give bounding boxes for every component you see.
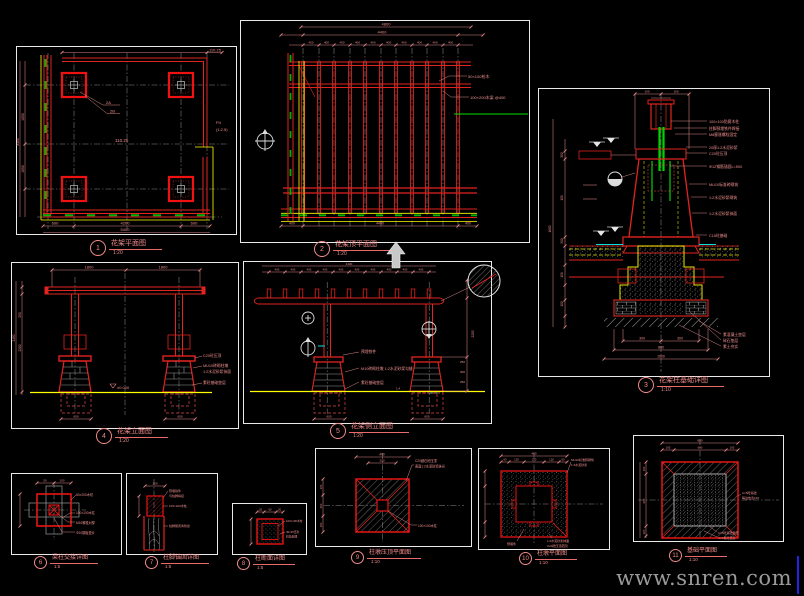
dc-dim-0: 20 xyxy=(259,508,263,512)
roof-dim-top1: 4800 xyxy=(382,22,392,27)
svg-text:100×100木柱: 100×100木柱 xyxy=(418,523,438,528)
section-dim-l3: 150 xyxy=(560,272,564,278)
svg-text:表面1:2水泥砂浆抹光: 表面1:2水泥砂浆抹光 xyxy=(415,464,446,469)
section-dim-b0: 300 xyxy=(639,337,645,341)
plan-dim-btotal: 5400 xyxy=(121,227,131,232)
section-dim-b3: 1000 xyxy=(657,355,665,359)
dd-labels: C20细石砼压顶 表面1:2水泥砂浆抹光 100×100木柱 xyxy=(415,458,446,528)
title-detail-foundation-plan: 11 基础平面图 1:10 xyxy=(669,548,727,563)
detail-circle-icon xyxy=(608,172,635,186)
roof-beams xyxy=(283,62,477,193)
plan-dim-center: 110.25 xyxy=(115,138,129,143)
section-dim-b1: 300 xyxy=(677,337,683,341)
svg-text:400: 400 xyxy=(291,268,296,272)
svg-text:400: 400 xyxy=(339,41,344,45)
section-dim-l4: 100 xyxy=(560,301,564,307)
side-dim-r1: 300 xyxy=(460,370,465,374)
title-dd-bubble: 9 xyxy=(351,551,364,564)
title-dc-bubble: 8 xyxy=(237,557,250,570)
svg-text:预埋铁件: 预埋铁件 xyxy=(361,349,376,354)
de-dim-4: 60 xyxy=(561,458,565,462)
front-elevation-drawing: 1800 1800 xyxy=(12,263,238,428)
svg-text:MU10标准砖砌筑: MU10标准砖砌筑 xyxy=(571,457,594,462)
svg-text:400: 400 xyxy=(386,41,391,45)
plan-drawing: 2A 2B 110.25 110.25 P4 (1:2.5) 600 4200 … xyxy=(17,47,236,234)
title-dd-name: 柱墩压顶平面图 xyxy=(367,550,421,559)
panel-detail-column-section: 20 60 20 100×100木柱 45×45压条 斜角处理 xyxy=(232,503,307,555)
side-foundations xyxy=(314,393,443,413)
side-dim-total: 4400 xyxy=(346,262,353,266)
detail-foundation-plan-drawing: 800 100 600 100 100 600 100 C15砼基础 每边放宽1… xyxy=(634,436,783,541)
svg-text:M10螺栓对穿: M10螺栓对穿 xyxy=(76,520,95,525)
side-rafter-ends xyxy=(267,289,431,298)
title-da-name: 梁柱交接详图 xyxy=(50,555,98,564)
svg-text:1:2水泥砂浆: 1:2水泥砂浆 xyxy=(571,462,587,467)
front-labels: C20砼压顶 MU10砖砌柱墩 1:2水泥砂浆抹面 素砼基础垫层 xyxy=(203,353,231,385)
section-dim-l2: 900 xyxy=(560,238,564,244)
title-db-bubble: 7 xyxy=(145,556,158,569)
title-df-name: 基础平面图 xyxy=(685,548,727,557)
detail-beam-column-drawing: 50 100 50×200木枋 100×100木柱 M10螺栓对穿 Φ10钢板垫… xyxy=(12,474,121,554)
df-dim-t1: 600 xyxy=(698,446,703,450)
plan-leader-label-1: 2A xyxy=(106,100,111,105)
title-de-bubble: 10 xyxy=(519,552,532,565)
title-dc-name: 柱断面详图 xyxy=(253,556,295,565)
plan-note-r2: (1:2.5) xyxy=(216,127,228,132)
svg-text:素混凝土垫层: 素混凝土垫层 xyxy=(723,332,746,337)
svg-text:C15砼基础: C15砼基础 xyxy=(742,490,757,495)
level-mark-icons-top xyxy=(589,138,619,147)
svg-text:C10素砼垫层: C10素砼垫层 xyxy=(718,535,736,540)
title-side-name: 花架侧立面图 xyxy=(349,423,409,433)
panel-detail-pier-cap: 400 200 100 200 100 C20细石砼压顶 表面1:2水泥砂浆抹光… xyxy=(315,448,472,547)
da-dim-0: 50 xyxy=(43,479,47,483)
title-detail-column-section: 8 柱断面详图 1:5 xyxy=(237,556,295,571)
front-dim-l1: 2200 xyxy=(18,344,22,351)
title-front-scale: 1:20 xyxy=(115,438,168,444)
svg-text:400: 400 xyxy=(371,268,376,272)
side-top-dims xyxy=(262,266,436,274)
cad-sheet: 2A 2B 110.25 110.25 P4 (1:2.5) 600 4200 … xyxy=(0,0,804,596)
plan-dim-l0: 1650 xyxy=(21,113,25,121)
svg-text:400: 400 xyxy=(370,41,375,45)
svg-text:素砼基础垫层: 素砼基础垫层 xyxy=(361,380,384,385)
plan-beam-outline xyxy=(43,55,210,217)
svg-text:柱脚刷沥青防腐: 柱脚刷沥青防腐 xyxy=(169,523,190,528)
side-labels: 预埋铁件 M10砖砌柱墩 1:2水泥砂浆勾缝 素砼基础垫层 xyxy=(361,349,413,385)
svg-text:M8膨胀螺栓固定: M8膨胀螺栓固定 xyxy=(709,132,737,137)
title-section-bubble: 3 xyxy=(638,377,654,393)
svg-text:Φ10钢板垫片: Φ10钢板垫片 xyxy=(76,530,95,535)
svg-text:与柱脚焊接: 与柱脚焊接 xyxy=(169,493,184,498)
db-labels: 预埋铁件 与柱脚焊接 100×100木柱 柱脚刷沥青防腐 xyxy=(169,488,190,528)
svg-text:400: 400 xyxy=(323,268,328,272)
plan-columns xyxy=(62,73,193,201)
df-dim-t2: 100 xyxy=(730,446,735,450)
panel-roof-plan: 4800 4400 400 400 400 400 400 400 400 40… xyxy=(240,20,530,243)
dd-geometry xyxy=(356,479,409,532)
svg-text:100×100木柱: 100×100木柱 xyxy=(286,519,303,523)
side-dim-found1: 600 xyxy=(326,415,331,419)
svg-text:C20砼压顶: C20砼压顶 xyxy=(203,353,222,358)
section-left-dims xyxy=(553,119,597,329)
title-de-name: 柱墩平面图 xyxy=(535,551,577,560)
svg-text:碎石垫层: 碎石垫层 xyxy=(723,338,738,343)
panel-detail-foundation-plan: 800 100 600 100 100 600 100 C15砼基础 每边放宽1… xyxy=(633,435,784,542)
da-dims xyxy=(19,482,73,528)
svg-text:400: 400 xyxy=(308,41,313,45)
svg-text:100×100木柱: 100×100木柱 xyxy=(169,503,187,508)
title-base-section: 3 花架柱基础详图 1:10 xyxy=(638,377,724,393)
svg-text:素土夯实: 素土夯实 xyxy=(723,344,738,349)
dc-dim-1: 60 xyxy=(268,508,272,512)
svg-text:400: 400 xyxy=(307,268,312,272)
title-roof-plan: 2 花架顶平面图 1:20 xyxy=(314,241,393,257)
plan-dim-l1: 1650 xyxy=(21,165,25,173)
side-centerlines xyxy=(327,282,429,414)
side-right-dims xyxy=(441,279,469,393)
title-detail-pier-cap: 9 柱墩压顶平面图 1:10 xyxy=(351,550,421,565)
watermark: www.snren.com xyxy=(616,566,792,590)
svg-text:M10砖砌柱墩 1:2水泥砂浆勾缝: M10砖砌柱墩 1:2水泥砂浆勾缝 xyxy=(361,366,413,371)
svg-text:400: 400 xyxy=(355,41,360,45)
panel-base-section: 100 100 xyxy=(538,88,770,377)
df-dim-l1: 600 xyxy=(642,498,646,503)
plan-dim-b1: 4200 xyxy=(121,221,131,226)
panel-detail-beam-column: 50 100 50×200木枋 100×100木柱 M10螺栓对穿 Φ10钢板垫… xyxy=(11,473,122,555)
front-left-dims xyxy=(16,281,24,395)
roof-dim-b1: 4400 xyxy=(376,222,384,226)
dd-dim-l2: 100 xyxy=(319,522,323,527)
title-detail-column-foot: 7 柱脚锚固详图 1:5 xyxy=(145,555,209,570)
detail-pier-plan-drawing: 480 60 120 120 120 60 MU10标准砖砌筑 1:2水泥砂 xyxy=(479,449,609,549)
svg-text:MU10砖砌柱墩: MU10砖砌柱墩 xyxy=(203,363,229,368)
title-section-name: 花架柱基础详图 xyxy=(657,377,724,387)
roof-label-leaders xyxy=(439,76,469,97)
da-labels: 50×200木枋 100×100木柱 M10螺栓对穿 Φ10钢板垫片 xyxy=(76,492,96,535)
svg-text:C15砼基础: C15砼基础 xyxy=(709,233,728,238)
section-cap-slab xyxy=(579,149,686,159)
side-ground-note: 1:4 xyxy=(396,387,401,391)
roof-label-1: 50×100枋木 xyxy=(468,73,489,79)
level-mark-icons-ground xyxy=(593,227,623,236)
up-arrow-icon xyxy=(383,240,409,270)
svg-text:400: 400 xyxy=(432,41,437,45)
svg-text:1:2水泥砂浆砌筑: 1:2水泥砂浆砌筑 xyxy=(709,195,737,200)
front-dim-l0: 250 xyxy=(18,312,22,318)
title-plan: 1 花架平面图 1:20 xyxy=(90,240,162,256)
svg-text:400: 400 xyxy=(275,268,280,272)
df-geometry xyxy=(662,462,738,538)
panel-detail-column-foot: 100 预埋铁件 与柱脚焊接 100×100木柱 柱脚刷沥青防腐 xyxy=(126,473,218,555)
svg-text:20厚1:2水泥砂浆: 20厚1:2水泥砂浆 xyxy=(709,145,738,150)
front-dim-t1: 1800 xyxy=(159,265,169,270)
svg-text:斜角处理: 斜角处理 xyxy=(286,535,297,539)
title-da-bubble: 6 xyxy=(34,556,47,569)
svg-text:45×45压条: 45×45压条 xyxy=(286,530,300,534)
side-dim-r2: 250 xyxy=(460,380,465,384)
svg-text:400: 400 xyxy=(324,41,329,45)
svg-text:400: 400 xyxy=(355,268,360,272)
title-de-scale: 1:10 xyxy=(535,560,577,566)
side-columns xyxy=(324,304,433,357)
base-section-drawing: 100 100 xyxy=(539,89,769,376)
roof-plan-drawing: 4800 4400 400 400 400 400 400 400 400 40… xyxy=(241,21,529,242)
svg-text:素砼基础垫层: 素砼基础垫层 xyxy=(203,380,226,385)
svg-text:每边放宽100: 每边放宽100 xyxy=(742,495,759,500)
title-plan-bubble: 1 xyxy=(90,240,106,256)
front-dim-found2: 600 xyxy=(177,415,182,419)
df-dim-l2: 100 xyxy=(642,529,646,534)
title-plan-scale: 1:20 xyxy=(109,250,162,256)
front-dim-found1: 600 xyxy=(73,415,78,419)
title-db-name: 柱脚锚固详图 xyxy=(161,555,209,564)
section-labels: 100×100防腐木柱 柱脚预埋铁件焊接 M8膨胀螺栓固定 20厚1:2水泥砂浆… xyxy=(709,119,746,349)
de-dim-1: 120 xyxy=(514,458,519,462)
da-dim-1: 100 xyxy=(59,479,64,483)
title-section-scale: 1:10 xyxy=(657,387,724,393)
title-detail-pier-plan: 10 柱墩平面图 1:10 xyxy=(519,551,577,566)
side-elevation-drawing: 4400 400 400 400 400 400 400 400 400 400… xyxy=(244,262,491,423)
svg-text:400: 400 xyxy=(448,41,453,45)
title-detail-beam-column: 6 梁柱交接详图 1:5 xyxy=(34,555,98,570)
title-df-scale: 1:10 xyxy=(685,557,727,563)
svg-text:1:2水泥砂浆抹面: 1:2水泥砂浆抹面 xyxy=(203,369,231,374)
de-dim-3: 120 xyxy=(549,458,554,462)
de-dim-top: 480 xyxy=(531,452,536,456)
de-dim-0: 60 xyxy=(503,458,507,462)
svg-text:400: 400 xyxy=(401,41,406,45)
detail-bubble-icon xyxy=(441,265,500,301)
svg-text:预埋铁件: 预埋铁件 xyxy=(169,488,181,493)
title-front-bubble: 4 xyxy=(96,428,112,444)
dc-geometry xyxy=(257,519,283,544)
front-ground-label: ±0.000 xyxy=(117,385,130,390)
svg-text:C15砼基础垫层: C15砼基础垫层 xyxy=(718,530,739,535)
de-dim-2: 120 xyxy=(532,458,537,462)
front-bottom-dims xyxy=(60,418,197,421)
side-dim-r0: 250 xyxy=(460,360,465,364)
title-da-scale: 1:5 xyxy=(50,564,98,570)
plan-dim-overall: 110.25 xyxy=(209,48,222,53)
svg-text:100×100防腐木柱: 100×100防腐木柱 xyxy=(709,119,739,124)
svg-text:400: 400 xyxy=(417,41,422,45)
svg-text:400: 400 xyxy=(419,268,424,272)
plan-dim-b0: 600 xyxy=(52,221,59,226)
detail-pier-cap-drawing: 400 200 100 200 100 C20细石砼压顶 表面1:2水泥砂浆抹光… xyxy=(316,449,471,546)
section-dim-l0: 300 xyxy=(560,152,564,158)
title-df-bubble: 11 xyxy=(669,549,682,562)
df-dim-l0: 100 xyxy=(642,466,646,471)
roof-dim-b2: 400 xyxy=(465,222,471,226)
panel-plan: 2A 2B 110.25 110.25 P4 (1:2.5) 600 4200 … xyxy=(16,46,237,235)
side-beam xyxy=(254,298,444,304)
svg-text:柱脚预埋铁件焊接: 柱脚预埋铁件焊接 xyxy=(709,126,740,131)
svg-text:50×200木枋: 50×200木枋 xyxy=(76,492,94,497)
detail-column-foot-drawing: 100 预埋铁件 与柱脚焊接 100×100木柱 柱脚刷沥青防腐 xyxy=(127,474,217,554)
roof-label-2: 100×200木梁 @400 xyxy=(470,94,506,100)
side-label-leaders xyxy=(343,352,359,389)
detail-column-section-drawing: 20 60 20 100×100木柱 45×45压条 斜角处理 xyxy=(233,504,306,554)
plan-note-r1: P4 xyxy=(216,120,222,125)
svg-text:Φ12钢筋锚固L=500: Φ12钢筋锚固L=500 xyxy=(709,164,742,169)
front-dim-t0: 1800 xyxy=(85,265,95,270)
title-roof-bubble: 2 xyxy=(314,241,330,257)
db-dim: 100 xyxy=(152,482,157,486)
section-dim-l1: 150 xyxy=(560,195,564,201)
svg-text:100×100木柱: 100×100木柱 xyxy=(76,510,96,515)
title-plan-name: 花架平面图 xyxy=(109,240,162,250)
detail-marker-icon xyxy=(255,129,275,151)
roof-rafter-centerlines xyxy=(303,48,458,229)
panel-detail-pier-plan: 480 60 120 120 120 60 MU10标准砖砌筑 1:2水泥砂 xyxy=(478,448,610,550)
side-dim-rtotal: 2200 xyxy=(471,330,475,337)
svg-text:400: 400 xyxy=(339,268,344,272)
title-side-elevation: 5 花架侧立面图 1:20 xyxy=(330,423,409,439)
svg-text:预埋件: 预埋件 xyxy=(507,541,516,546)
side-dim-found2: 600 xyxy=(424,415,429,419)
svg-text:MU10标准砖砌筑: MU10标准砖砌筑 xyxy=(709,182,738,187)
title-side-scale: 1:20 xyxy=(349,433,409,439)
roof-rafter-dims: 400 400 400 400 400 400 400 400 400 400 xyxy=(308,41,453,45)
roof-dimensions xyxy=(280,26,485,228)
df-dim-t0: 100 xyxy=(666,446,671,450)
section-dim-b2: 800 xyxy=(658,346,664,350)
svg-text:1:2水泥砂浆抹面: 1:2水泥砂浆抹面 xyxy=(709,211,737,216)
dd-dim-top: 400 xyxy=(379,453,385,457)
title-side-bubble: 5 xyxy=(330,423,346,439)
dc-labels: 100×100木柱 45×45压条 斜角处理 xyxy=(286,519,303,539)
roof-dim-top2: 4400 xyxy=(378,30,388,35)
front-foundations xyxy=(61,394,195,413)
section-dim-ltotal: 1600 xyxy=(548,225,552,232)
panel-front-elevation: 1800 1800 xyxy=(11,262,239,429)
plan-leader-label-2: 2B xyxy=(110,109,115,114)
blue-edge-bar xyxy=(797,556,799,594)
svg-text:1:2水泥砂浆抹面: 1:2水泥砂浆抹面 xyxy=(547,538,569,543)
plan-dim-ltotal: 3300 xyxy=(16,138,20,146)
title-front-elevation: 4 花架立面图 1:20 xyxy=(96,428,168,444)
dd-dim-l0: 100 xyxy=(319,484,323,489)
df-dim-top: 800 xyxy=(697,439,702,443)
title-db-scale: 1:5 xyxy=(161,564,209,570)
plan-dim-b2: 600 xyxy=(191,221,198,226)
dc-dim-2: 20 xyxy=(278,508,282,512)
front-ground-mark xyxy=(110,384,116,388)
side-piers xyxy=(312,357,443,391)
da-geometry xyxy=(29,486,79,534)
section-dim-t1: 100 xyxy=(673,90,678,94)
roof-dim-b0: 400 xyxy=(289,222,295,226)
title-front-name: 花架立面图 xyxy=(115,428,168,438)
front-columns xyxy=(64,294,190,356)
title-dd-scale: 1:10 xyxy=(367,559,421,565)
title-dc-scale: 1:5 xyxy=(253,565,295,571)
svg-text:C20砼压顶范围: C20砼压顶范围 xyxy=(547,543,568,548)
dd-dim-top2: 200 xyxy=(379,459,384,463)
section-dim-t0: 100 xyxy=(644,90,649,94)
panel-side-elevation: 4400 400 400 400 400 400 400 400 400 400… xyxy=(243,261,492,424)
dd-dim-l1: 200 xyxy=(319,503,323,508)
svg-text:C20细石砼压顶: C20细石砼压顶 xyxy=(415,458,438,463)
front-dim-ltotal: 2450 xyxy=(12,334,16,341)
svg-text:C20砼压顶: C20砼压顶 xyxy=(709,151,728,156)
